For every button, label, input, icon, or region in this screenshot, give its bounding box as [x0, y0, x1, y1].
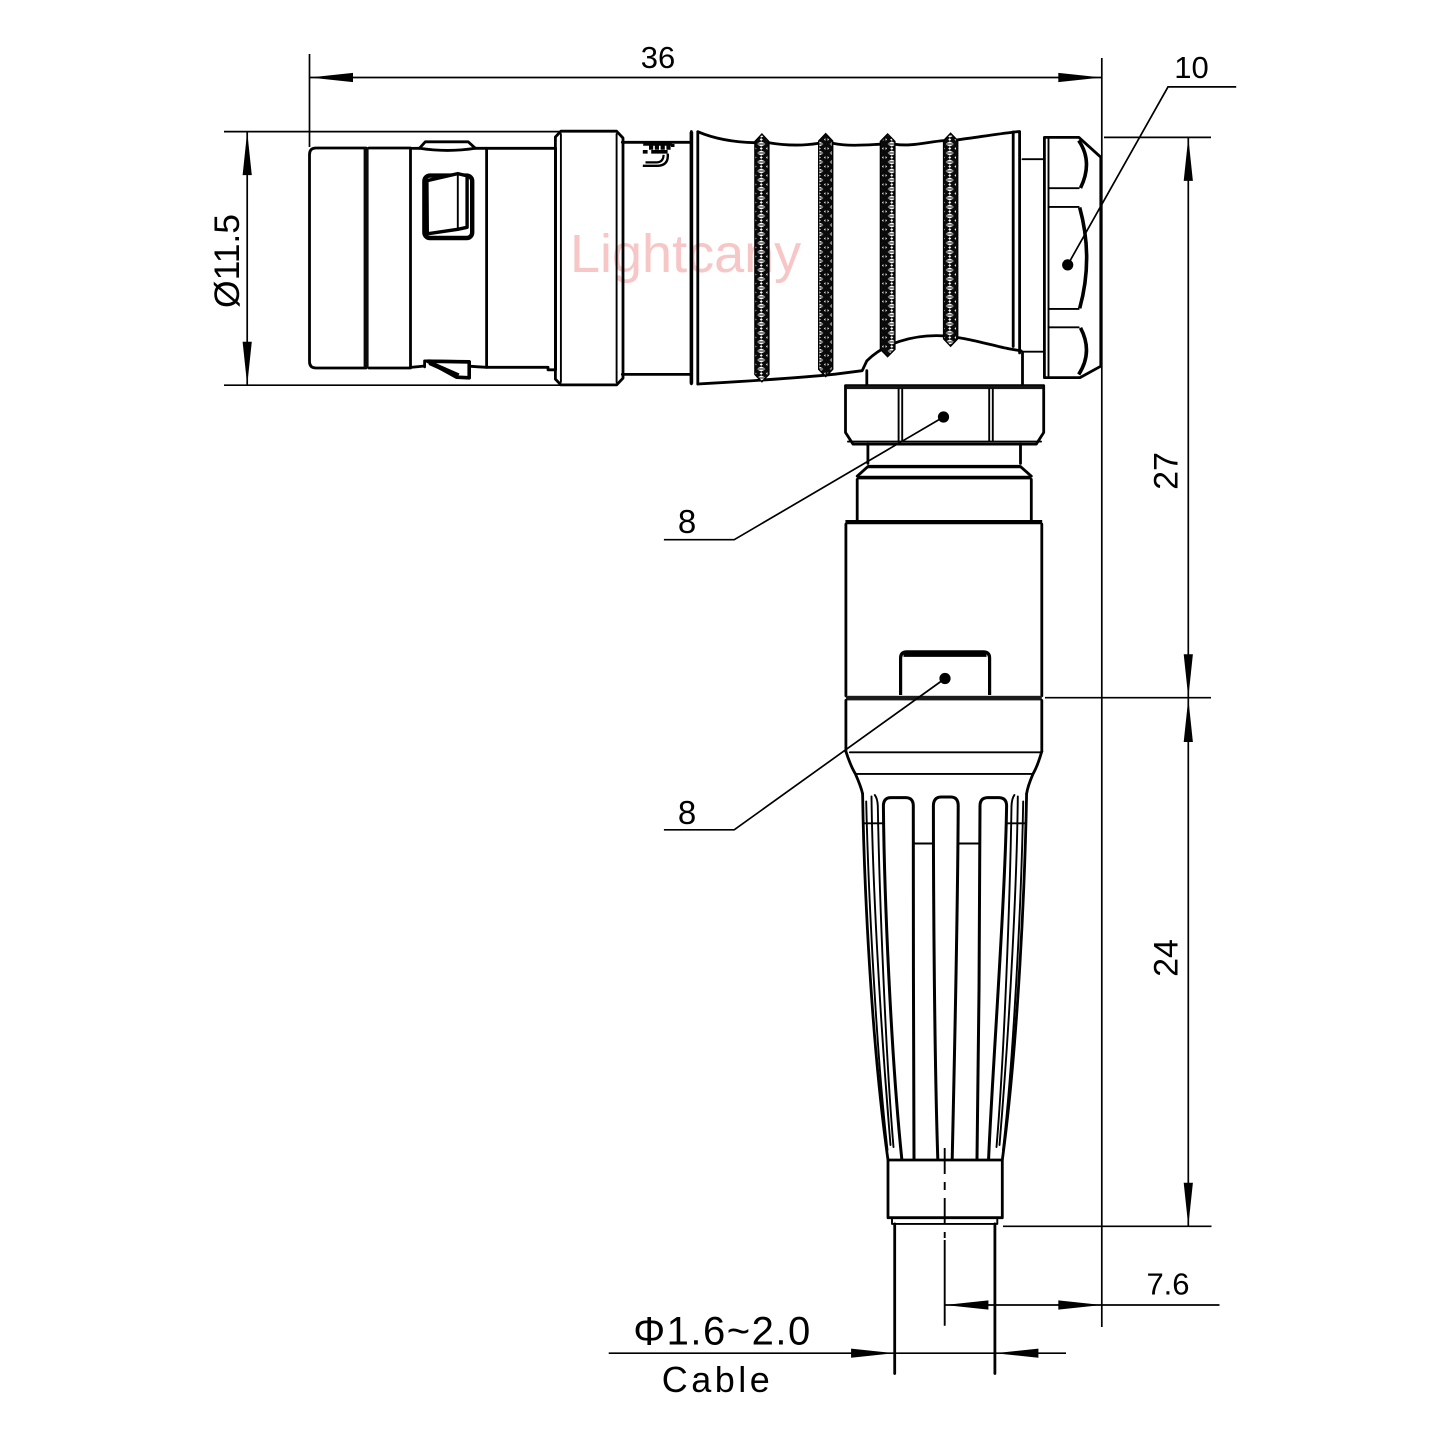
- svg-text:Cable: Cable: [662, 1359, 774, 1400]
- svg-text:7.6: 7.6: [1146, 1267, 1189, 1302]
- svg-text:Φ1.6~2.0: Φ1.6~2.0: [633, 1310, 811, 1354]
- svg-text:24: 24: [1148, 939, 1186, 977]
- svg-text:36: 36: [641, 40, 675, 75]
- svg-text:8: 8: [678, 794, 696, 831]
- svg-text:27: 27: [1148, 452, 1186, 490]
- svg-text:8: 8: [678, 503, 696, 540]
- svg-text:Ø11.5: Ø11.5: [207, 214, 247, 308]
- svg-text:10: 10: [1174, 50, 1208, 85]
